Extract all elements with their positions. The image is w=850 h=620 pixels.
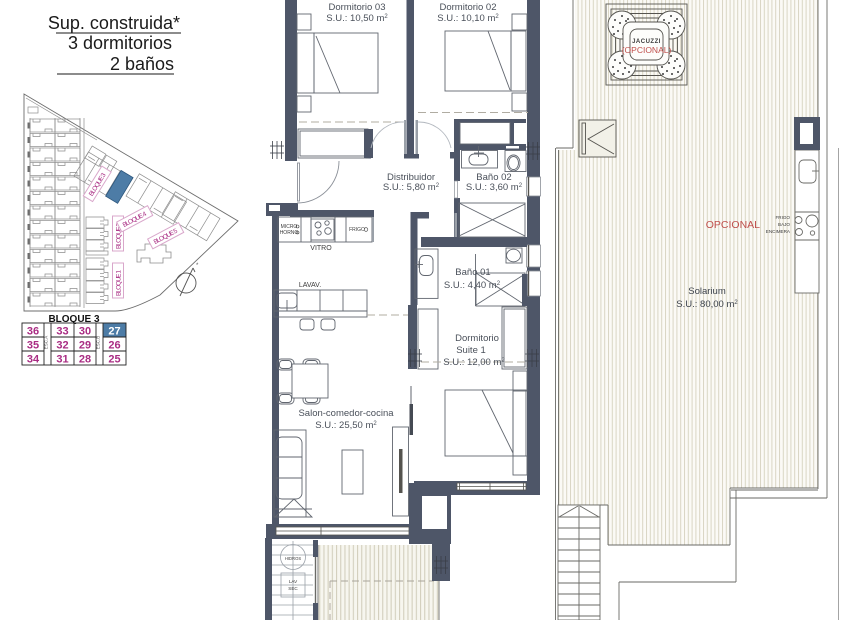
svg-text:BLOQUE 1: BLOQUE 1 <box>116 270 123 296</box>
svg-text:32: 32 <box>56 340 68 352</box>
svg-text:Baño 01: Baño 01 <box>455 267 490 278</box>
svg-text:OPCIONAL: OPCIONAL <box>706 219 760 231</box>
svg-text:BAJO: BAJO <box>778 222 790 227</box>
svg-text:S.U.: 25,50 m2: S.U.: 25,50 m2 <box>315 420 377 431</box>
svg-text:ESC.B: ESC.B <box>96 336 101 350</box>
svg-text:LAV: LAV <box>289 579 298 584</box>
svg-text:2 baños: 2 baños <box>110 54 174 74</box>
svg-text:35: 35 <box>27 340 39 352</box>
svg-text:HIDROS: HIDROS <box>285 556 301 561</box>
svg-text:S.U.: 4,40 m2: S.U.: 4,40 m2 <box>444 280 501 291</box>
svg-text:Suite 1: Suite 1 <box>456 345 486 356</box>
svg-text:26: 26 <box>108 340 120 352</box>
svg-text:VITRO: VITRO <box>310 245 332 252</box>
svg-text:S.U.: 80,00 m2: S.U.: 80,00 m2 <box>676 299 738 310</box>
svg-text:27: 27 <box>108 326 120 338</box>
svg-text:ESC.A: ESC.A <box>44 336 49 350</box>
svg-text:S.U.: 12,00 m2: S.U.: 12,00 m2 <box>443 357 505 368</box>
svg-text:29: 29 <box>79 340 91 352</box>
svg-text:34: 34 <box>27 354 40 366</box>
svg-text:S.U.: 3,60 m2: S.U.: 3,60 m2 <box>466 182 523 193</box>
svg-text:Dormitorio 03: Dormitorio 03 <box>328 2 385 13</box>
svg-text:SEC: SEC <box>288 586 298 591</box>
svg-text:FRIGO: FRIGO <box>349 227 365 233</box>
svg-text:33: 33 <box>56 326 68 338</box>
svg-text:Dormitorio 02: Dormitorio 02 <box>439 2 496 13</box>
svg-text:31: 31 <box>56 354 68 366</box>
svg-text:30: 30 <box>79 326 91 338</box>
svg-text:(OPCIONAL): (OPCIONAL) <box>622 45 672 55</box>
svg-text:25: 25 <box>108 354 120 366</box>
svg-text:S.U.: 10,50 m2: S.U.: 10,50 m2 <box>326 13 388 24</box>
svg-text:FRIGO: FRIGO <box>775 215 790 220</box>
svg-text:Sup. construida*: Sup. construida* <box>48 13 180 33</box>
svg-text:S.U.: 5,80 m2: S.U.: 5,80 m2 <box>383 182 440 193</box>
svg-text:Dormitorio: Dormitorio <box>455 333 499 344</box>
svg-text:Solarium: Solarium <box>688 286 726 297</box>
svg-text:HORNO: HORNO <box>280 230 299 236</box>
svg-text:36: 36 <box>27 326 39 338</box>
svg-text:ENCIMERA: ENCIMERA <box>766 229 791 234</box>
svg-text:3 dormitorios: 3 dormitorios <box>68 33 172 53</box>
svg-text:LAVAV.: LAVAV. <box>299 282 321 289</box>
svg-text:S.U.: 10,10 m2: S.U.: 10,10 m2 <box>437 13 499 24</box>
svg-text:Salon-comedor-cocina: Salon-comedor-cocina <box>298 408 394 419</box>
svg-text:*: * <box>196 263 199 269</box>
svg-text:28: 28 <box>79 354 91 366</box>
